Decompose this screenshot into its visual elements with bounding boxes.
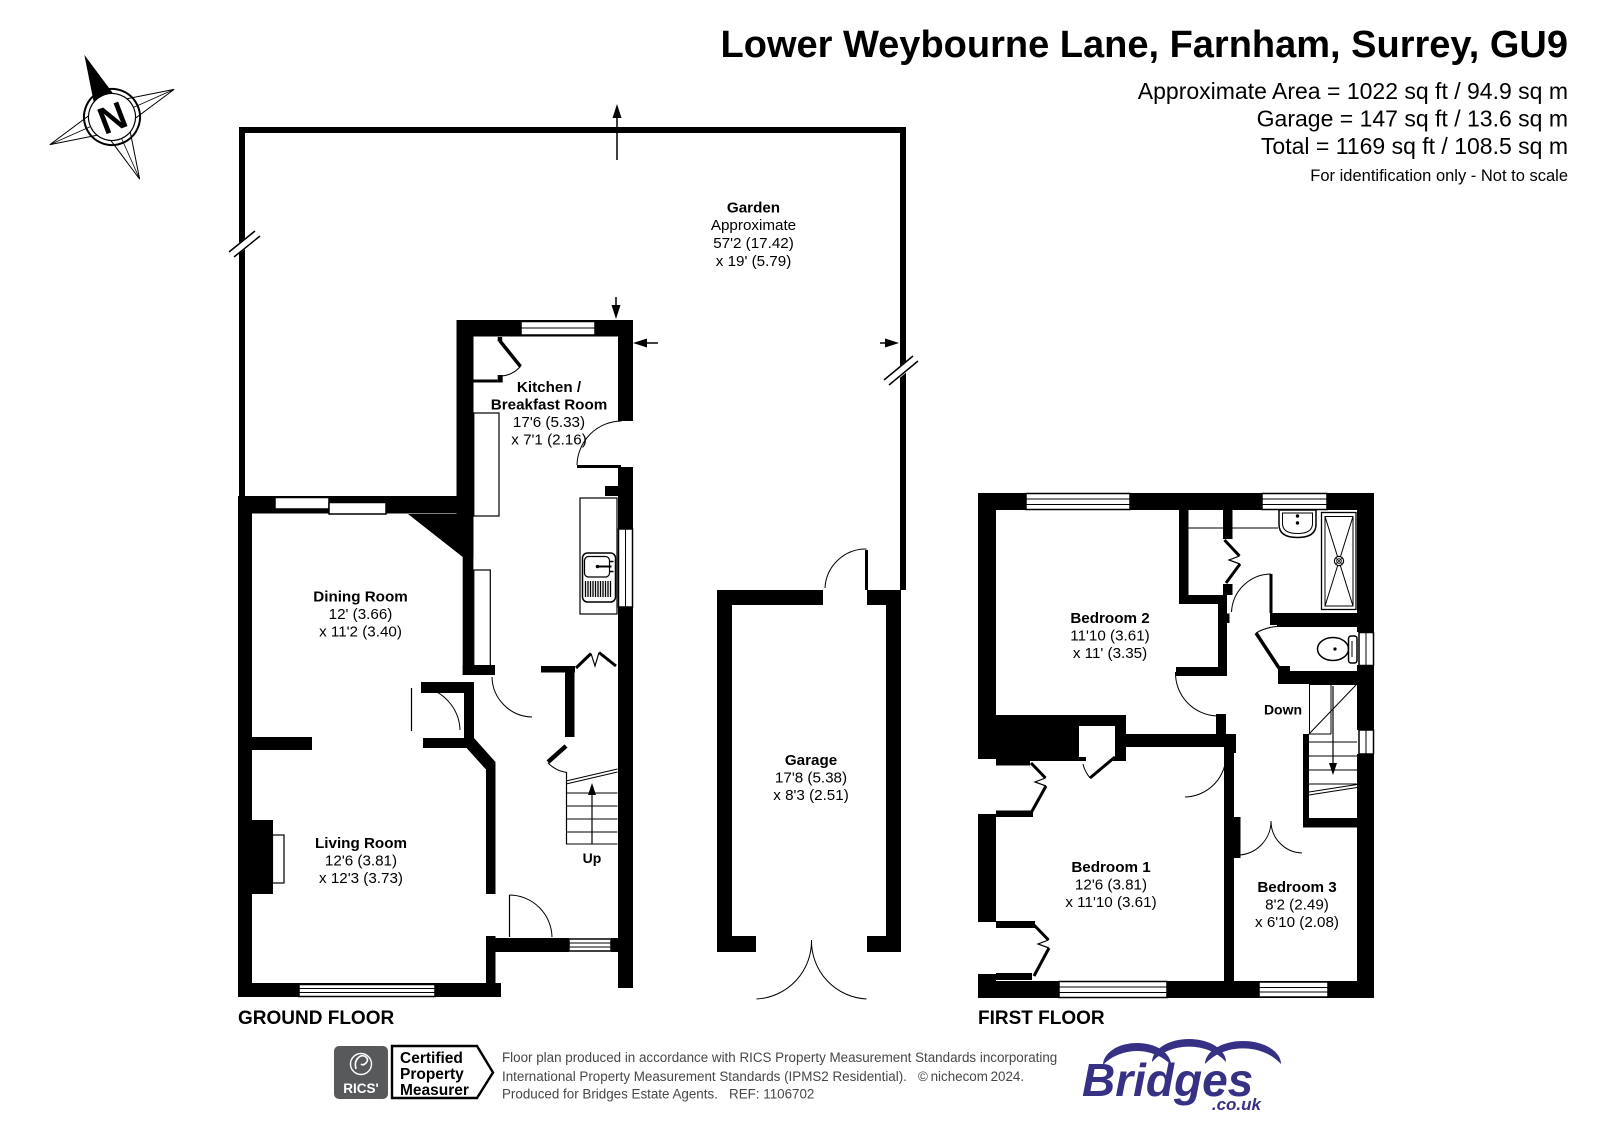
svg-text:For identification only - Not: For identification only - Not to scale bbox=[1310, 167, 1568, 185]
svg-text:Property: Property bbox=[400, 1066, 464, 1083]
svg-text:Garage = 147 sq ft / 13.6 sq m: Garage = 147 sq ft / 13.6 sq m bbox=[1257, 106, 1568, 132]
svg-text:International Property Measure: International Property Measurement Stand… bbox=[502, 1069, 1024, 1084]
svg-text:x 11'2 (3.40): x 11'2 (3.40) bbox=[319, 624, 402, 641]
svg-text:12' (3.66): 12' (3.66) bbox=[329, 606, 393, 623]
svg-text:Total = 1169 sq ft / 108.5 sq: Total = 1169 sq ft / 108.5 sq m bbox=[1261, 133, 1568, 159]
svg-text:Approximate: Approximate bbox=[711, 217, 796, 234]
svg-text:x 19' (5.79): x 19' (5.79) bbox=[716, 253, 792, 270]
svg-text:12'6 (3.81): 12'6 (3.81) bbox=[325, 853, 397, 870]
svg-text:Floor plan produced in accorda: Floor plan produced in accordance with R… bbox=[502, 1050, 1057, 1065]
svg-text:.co.uk: .co.uk bbox=[1212, 1095, 1263, 1114]
svg-text:x 11' (3.35): x 11' (3.35) bbox=[1073, 645, 1147, 662]
svg-text:x 7'1 (2.16): x 7'1 (2.16) bbox=[511, 432, 587, 449]
svg-text:57'2 (17.42): 57'2 (17.42) bbox=[713, 235, 794, 252]
svg-text:17'8 (5.38): 17'8 (5.38) bbox=[775, 770, 847, 787]
svg-text:FIRST FLOOR: FIRST FLOOR bbox=[978, 1008, 1105, 1029]
svg-text:x 12'3 (3.73): x 12'3 (3.73) bbox=[319, 870, 403, 887]
svg-text:GROUND FLOOR: GROUND FLOOR bbox=[238, 1008, 394, 1029]
svg-text:8'2 (2.49): 8'2 (2.49) bbox=[1265, 897, 1329, 914]
svg-text:Bedroom 1: Bedroom 1 bbox=[1071, 859, 1151, 876]
svg-text:Bedroom 2: Bedroom 2 bbox=[1070, 610, 1149, 627]
svg-text:Garage: Garage bbox=[785, 752, 837, 769]
svg-text:Produced for Bridges Estate Ag: Produced for Bridges Estate Agents. REF:… bbox=[502, 1087, 814, 1102]
svg-text:Lower Weybourne Lane, Farnham,: Lower Weybourne Lane, Farnham, Surrey, G… bbox=[721, 24, 1568, 66]
svg-text:Bedroom 3: Bedroom 3 bbox=[1257, 879, 1336, 896]
svg-text:Living Room: Living Room bbox=[315, 835, 407, 852]
svg-text:Down: Down bbox=[1264, 702, 1302, 718]
svg-text:Approximate Area = 1022 sq ft: Approximate Area = 1022 sq ft / 94.9 sq … bbox=[1138, 78, 1568, 104]
svg-text:Breakfast Room: Breakfast Room bbox=[491, 397, 607, 414]
svg-text:Measurer: Measurer bbox=[400, 1082, 469, 1099]
svg-text:Dining Room: Dining Room bbox=[313, 589, 407, 606]
svg-text:Garden: Garden bbox=[727, 200, 780, 217]
svg-text:Up: Up bbox=[583, 850, 602, 866]
svg-text:RICS': RICS' bbox=[343, 1081, 378, 1096]
svg-text:11'10 (3.61): 11'10 (3.61) bbox=[1070, 628, 1149, 645]
svg-text:x 11'10 (3.61): x 11'10 (3.61) bbox=[1065, 894, 1156, 911]
svg-text:Certified: Certified bbox=[400, 1050, 463, 1067]
svg-text:12'6 (3.81): 12'6 (3.81) bbox=[1075, 877, 1147, 894]
svg-text:17'6 (5.33): 17'6 (5.33) bbox=[513, 414, 585, 431]
svg-text:x 6'10 (2.08): x 6'10 (2.08) bbox=[1255, 914, 1339, 931]
svg-text:x 8'3 (2.51): x 8'3 (2.51) bbox=[773, 787, 849, 804]
svg-text:Kitchen /: Kitchen / bbox=[517, 379, 582, 396]
